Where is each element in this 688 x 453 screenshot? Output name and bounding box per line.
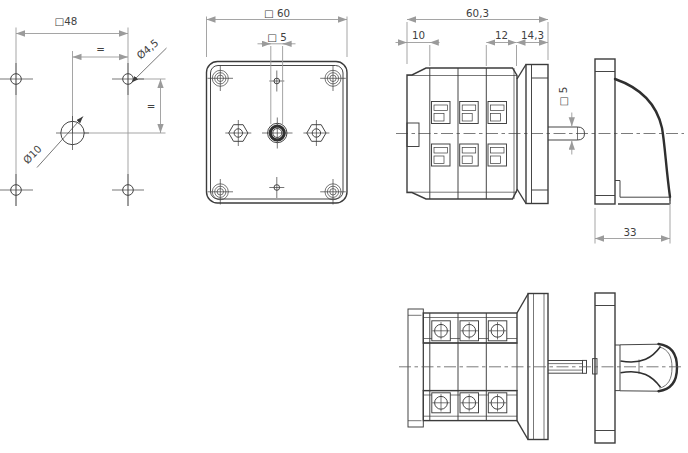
dim-handle-depth-label: 33 xyxy=(623,226,636,238)
terminal-screw xyxy=(488,321,507,341)
dim-square48: □48 xyxy=(16,15,128,34)
terminal xyxy=(432,144,451,166)
terminal xyxy=(460,102,479,124)
dim-square48-label: □48 xyxy=(55,15,78,27)
hex-nut xyxy=(225,120,251,146)
fixing-holes xyxy=(0,63,144,206)
dim-total-depth-label: 60,3 xyxy=(466,7,489,19)
leader-dia10: Ø10 xyxy=(20,117,83,168)
handle-plate xyxy=(595,59,615,204)
terminal xyxy=(488,102,507,124)
dim-rear-section-label: 14,3 xyxy=(521,29,544,41)
terminal xyxy=(432,102,451,124)
leader-dia45: Ø4,5 xyxy=(132,36,167,82)
handle-grip-profile xyxy=(615,79,670,197)
dim-equal-h-label: = xyxy=(96,43,105,55)
view-front: □ 60 □ 5 xyxy=(207,7,348,205)
dia10-label: Ø10 xyxy=(20,142,43,165)
dim-equal-v-label: = xyxy=(147,100,156,112)
terminal-screw xyxy=(488,393,507,413)
handle-side xyxy=(595,59,670,204)
dims-side: 60,3 10 12 14,3 □ 5 33 xyxy=(396,7,671,244)
dim-square5-front-label: □ 5 xyxy=(267,31,287,43)
view-bottom xyxy=(399,293,684,443)
technical-drawing: □48 = = Ø4,5 xyxy=(0,0,688,453)
terminal-screw xyxy=(460,393,479,413)
terminal-screw xyxy=(432,393,451,413)
center-shaft-bushing xyxy=(262,118,293,149)
dim-equal-vertical: = xyxy=(147,79,161,133)
center-hole xyxy=(56,116,89,150)
handle-neck-curve xyxy=(621,372,661,388)
dim-terminal-pitch-label: 12 xyxy=(495,29,508,41)
dim-shaft-square-label: □ 5 xyxy=(557,87,569,107)
terminal-screw xyxy=(460,321,479,341)
shaft-end-window xyxy=(407,123,419,147)
handle-bell-edge xyxy=(659,344,678,391)
handle-plate xyxy=(595,293,615,443)
view-side: 60,3 10 12 14,3 □ 5 33 xyxy=(396,7,685,244)
hex-nut xyxy=(303,120,329,146)
front-flange-side xyxy=(517,65,548,204)
dim-equal-horizontal: = xyxy=(73,43,129,57)
handle-bottom xyxy=(593,293,677,443)
terminal xyxy=(488,144,507,166)
dim-front-section-label: 10 xyxy=(412,29,425,41)
terminal xyxy=(460,144,479,166)
dim-square60-label: □ 60 xyxy=(264,7,290,19)
handle-neck-curve xyxy=(621,347,661,363)
terminal-screw xyxy=(432,321,451,341)
view-drilling-plan: □48 = = Ø4,5 xyxy=(0,15,167,206)
